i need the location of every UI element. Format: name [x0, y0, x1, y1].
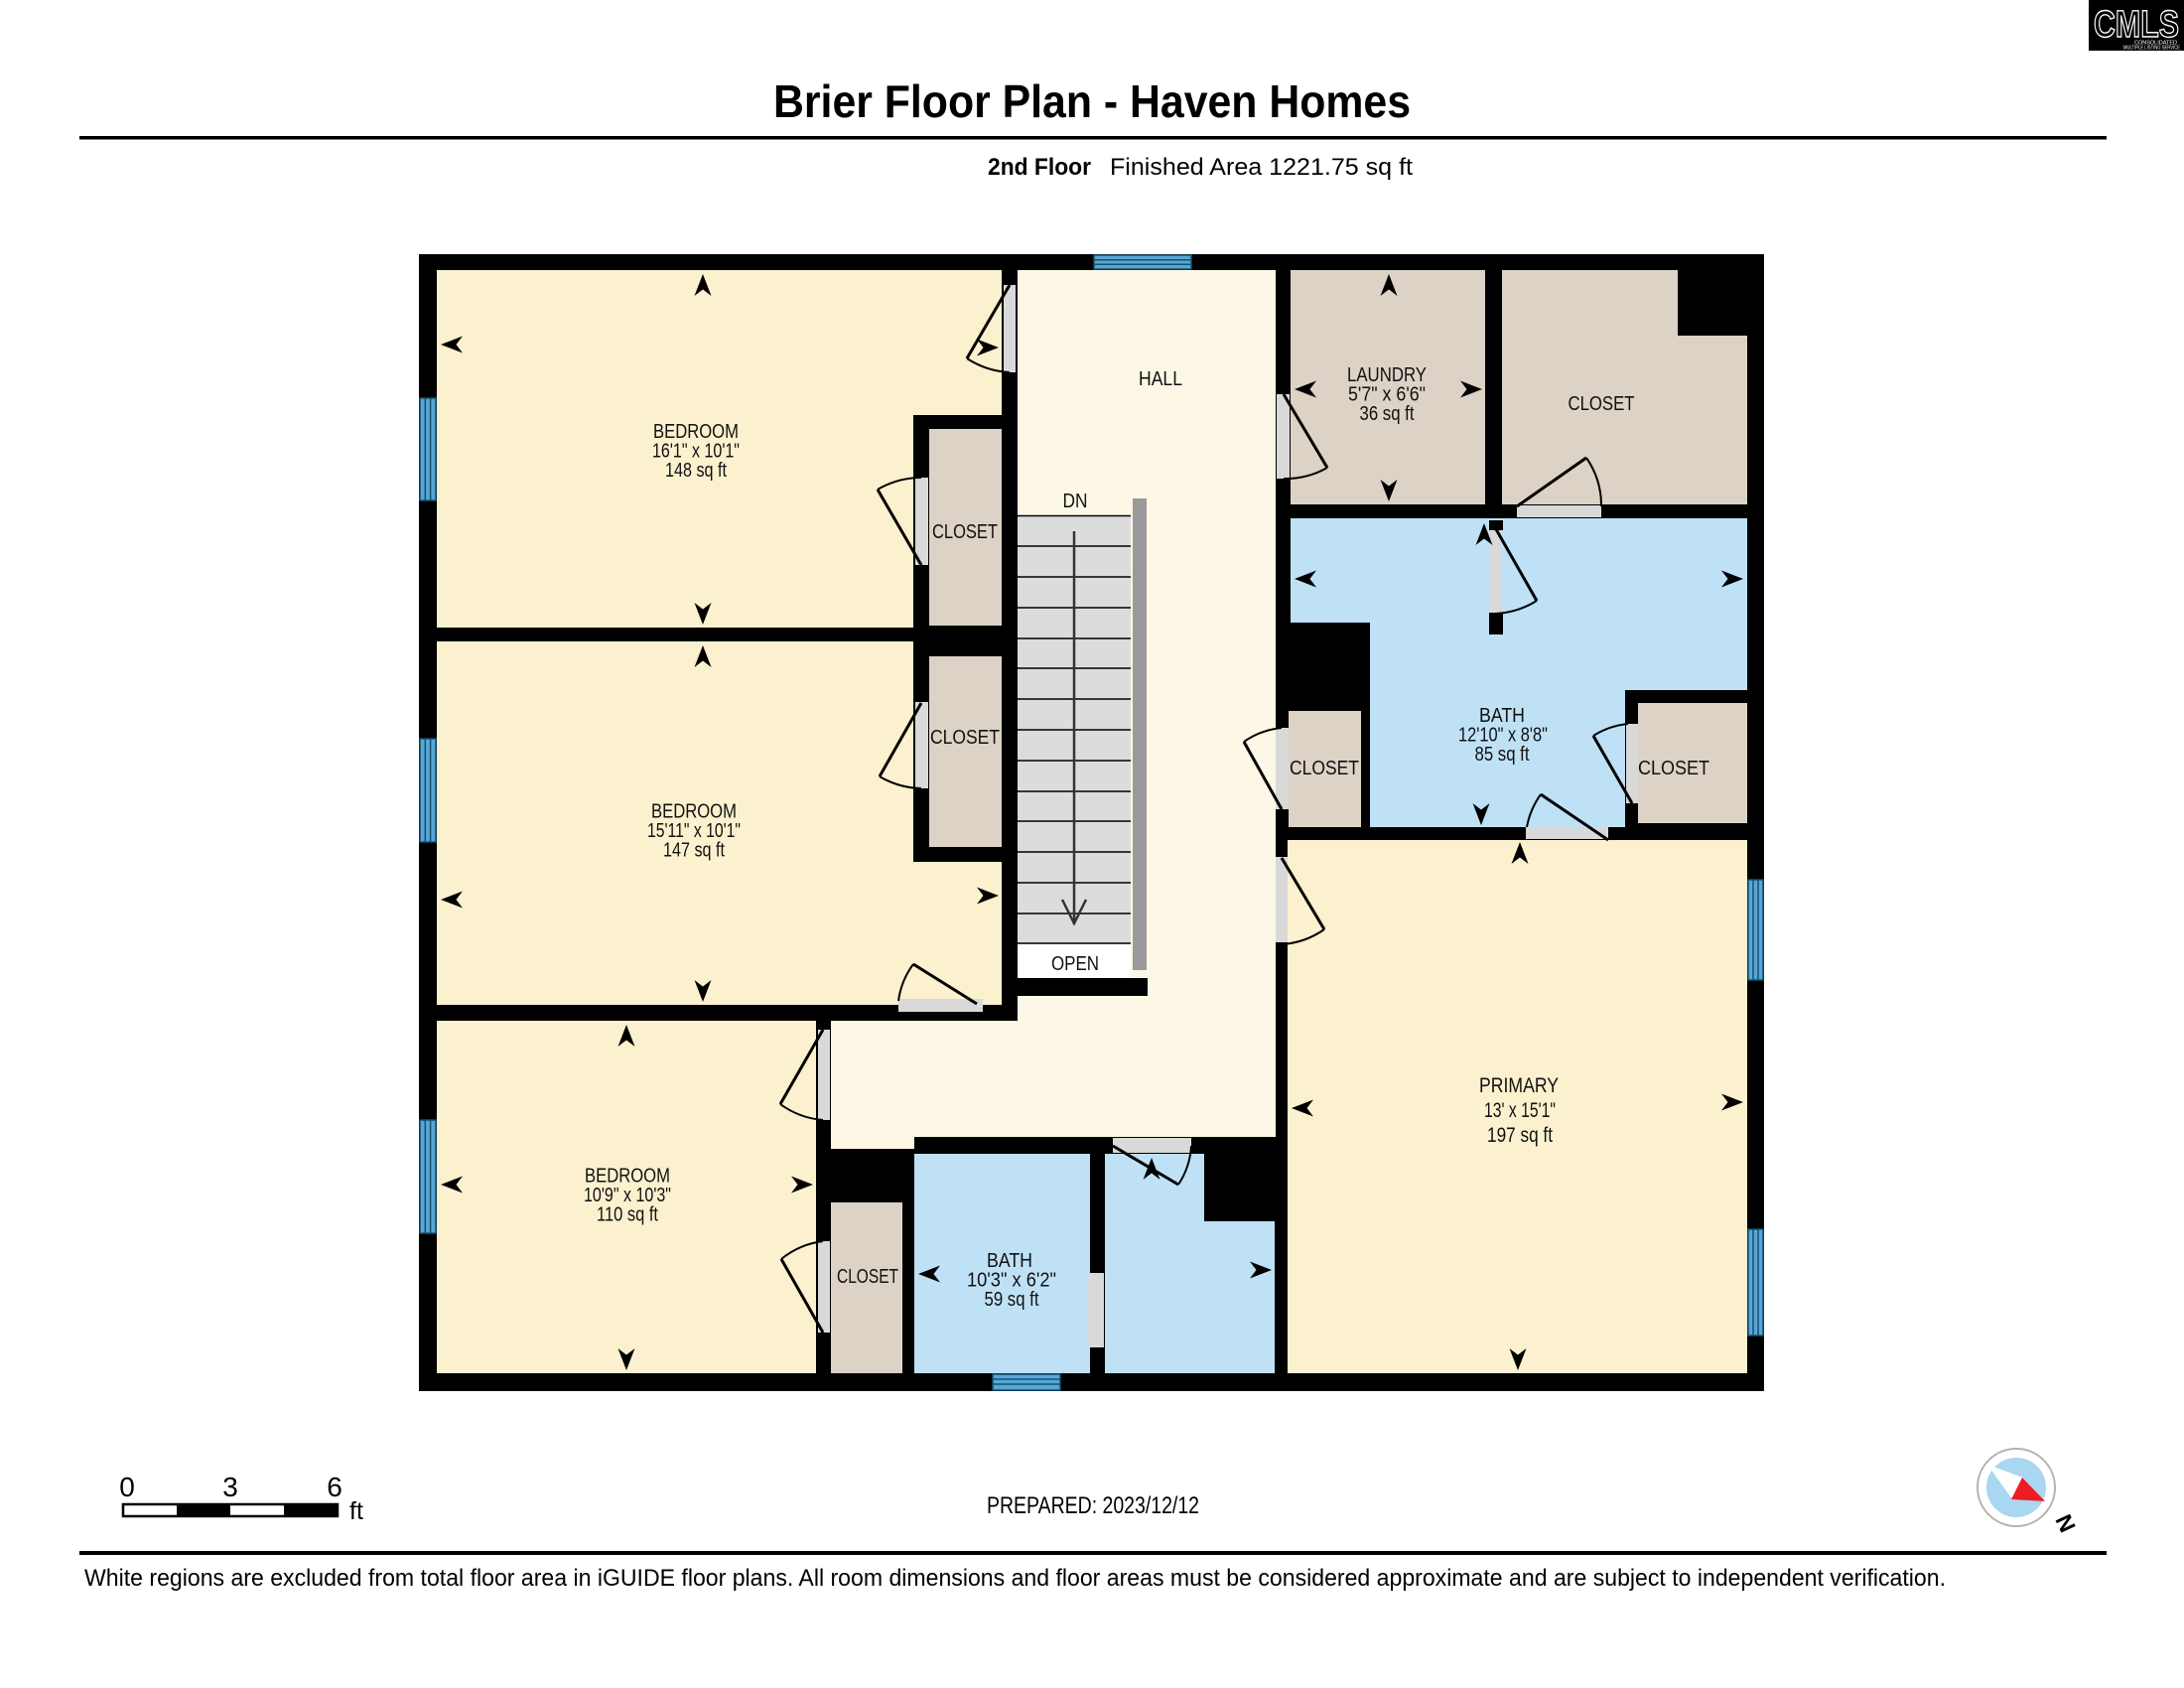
- svg-text:CLOSET: CLOSET: [1569, 393, 1635, 415]
- svg-text:CLOSET: CLOSET: [837, 1266, 898, 1288]
- svg-text:3: 3: [222, 1472, 238, 1502]
- svg-text:CLOSET: CLOSET: [1290, 758, 1359, 779]
- svg-text:PREPARED: 2023/12/12: PREPARED: 2023/12/12: [987, 1492, 1199, 1519]
- svg-text:13' x 15'1": 13' x 15'1": [1484, 1099, 1556, 1122]
- svg-text:ft: ft: [349, 1497, 363, 1525]
- svg-text:DN: DN: [1063, 491, 1088, 512]
- svg-text:White regions are excluded fro: White regions are excluded from total fl…: [84, 1565, 1946, 1592]
- svg-text:6: 6: [327, 1472, 342, 1502]
- svg-text:OPEN: OPEN: [1051, 953, 1099, 975]
- svg-text:36 sq ft: 36 sq ft: [1360, 403, 1415, 425]
- svg-text:Finished Area 1221.75 sq ft: Finished Area 1221.75 sq ft: [1110, 154, 1413, 181]
- svg-text:85 sq ft: 85 sq ft: [1475, 744, 1530, 766]
- svg-text:147 sq ft: 147 sq ft: [663, 840, 725, 862]
- svg-text:2nd Floor: 2nd Floor: [988, 154, 1091, 181]
- svg-text:PRIMARY: PRIMARY: [1479, 1074, 1559, 1097]
- svg-text:MULTIPLE LISTING SERVICE: MULTIPLE LISTING SERVICE: [2123, 46, 2180, 52]
- svg-text:148 sq ft: 148 sq ft: [665, 460, 727, 482]
- svg-text:0: 0: [119, 1472, 135, 1502]
- svg-text:59 sq ft: 59 sq ft: [985, 1289, 1039, 1311]
- svg-text:CLOSET: CLOSET: [932, 521, 998, 543]
- svg-text:Brier Floor Plan - Haven Homes: Brier Floor Plan - Haven Homes: [773, 75, 1411, 127]
- svg-text:HALL: HALL: [1139, 368, 1182, 390]
- svg-text:CLOSET: CLOSET: [1638, 758, 1709, 779]
- svg-text:CLOSET: CLOSET: [930, 727, 1000, 749]
- svg-text:197 sq ft: 197 sq ft: [1487, 1124, 1553, 1147]
- svg-text:110 sq ft: 110 sq ft: [597, 1204, 658, 1226]
